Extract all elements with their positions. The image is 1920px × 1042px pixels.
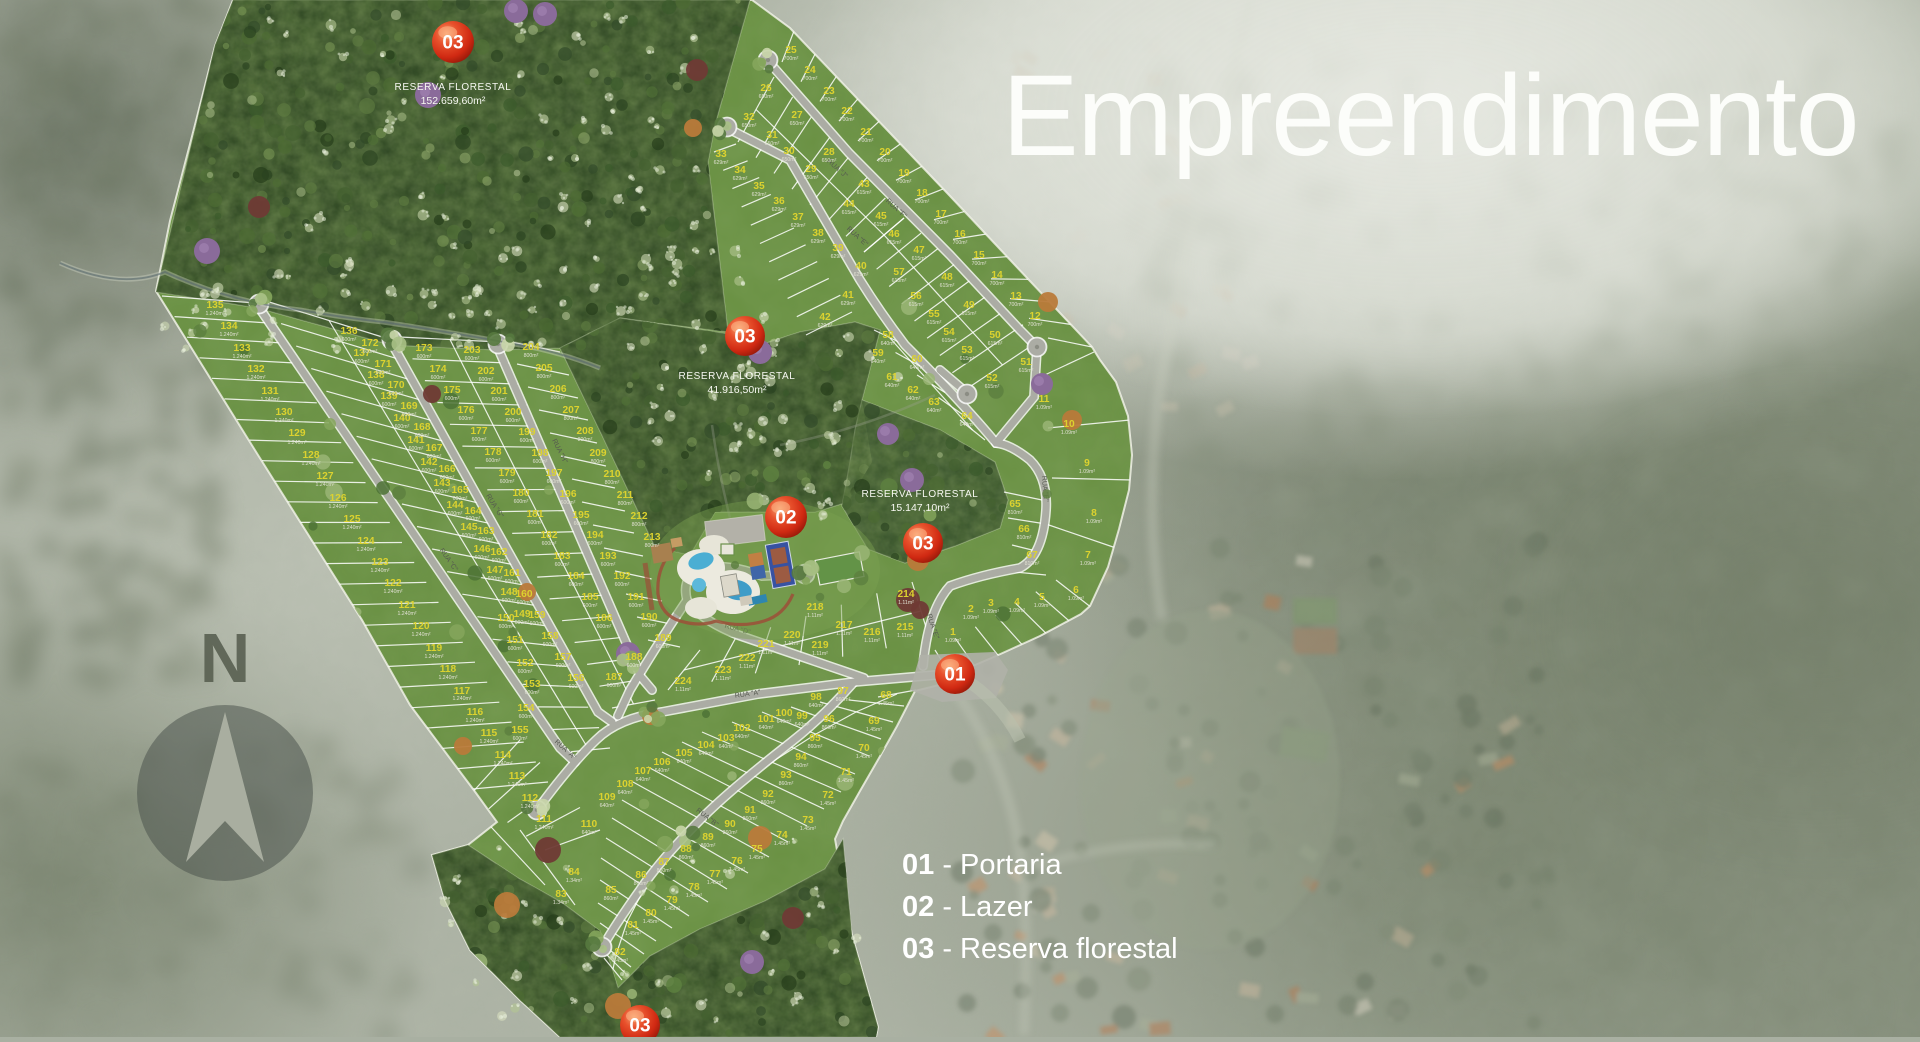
svg-text:600m²: 600m² xyxy=(369,381,384,387)
svg-text:1.240m²: 1.240m² xyxy=(493,761,512,767)
svg-text:600m²: 600m² xyxy=(417,354,432,360)
svg-text:615m²: 615m² xyxy=(887,240,902,246)
svg-text:1.45m²: 1.45m² xyxy=(664,906,680,912)
svg-text:167: 167 xyxy=(426,443,443,454)
svg-text:5: 5 xyxy=(1039,592,1045,603)
svg-text:177: 177 xyxy=(471,426,488,437)
svg-text:201: 201 xyxy=(491,386,508,397)
svg-text:41.916,50m²: 41.916,50m² xyxy=(708,384,767,396)
svg-text:6: 6 xyxy=(1073,585,1079,596)
svg-text:188: 188 xyxy=(626,652,643,663)
svg-text:860m²: 860m² xyxy=(779,781,794,787)
svg-text:700m²: 700m² xyxy=(784,56,799,62)
svg-text:640m²: 640m² xyxy=(735,734,750,740)
svg-text:89: 89 xyxy=(702,832,714,843)
svg-text:600m²: 600m² xyxy=(453,496,468,502)
svg-text:90: 90 xyxy=(724,819,736,830)
svg-text:800m²: 800m² xyxy=(605,480,620,486)
svg-text:214: 214 xyxy=(898,589,915,600)
svg-text:1.240m²: 1.240m² xyxy=(260,397,279,403)
svg-text:178: 178 xyxy=(485,447,502,458)
svg-text:1.240m²: 1.240m² xyxy=(383,589,402,595)
svg-text:28: 28 xyxy=(823,147,835,158)
svg-text:600m²: 600m² xyxy=(519,714,534,720)
svg-text:615m²: 615m² xyxy=(927,320,942,326)
svg-text:1.45m²: 1.45m² xyxy=(643,919,659,925)
svg-text:600m²: 600m² xyxy=(514,499,529,505)
svg-text:1.09m²: 1.09m² xyxy=(1036,405,1052,411)
svg-text:195: 195 xyxy=(573,510,590,521)
svg-text:650m²: 650m² xyxy=(790,121,805,127)
svg-text:860m²: 860m² xyxy=(761,800,776,806)
svg-text:163: 163 xyxy=(478,526,495,537)
svg-text:600m²: 600m² xyxy=(515,620,530,626)
svg-text:114: 114 xyxy=(495,750,512,761)
svg-text:58: 58 xyxy=(882,330,894,341)
svg-text:02 - Lazer: 02 - Lazer xyxy=(902,891,1033,923)
svg-text:84: 84 xyxy=(568,867,580,878)
svg-text:1.09m²: 1.09m² xyxy=(1079,469,1095,475)
svg-text:1.240m²: 1.240m² xyxy=(356,547,375,553)
svg-text:600m²: 600m² xyxy=(462,533,477,539)
svg-text:640m²: 640m² xyxy=(910,365,925,371)
svg-text:650m²: 650m² xyxy=(804,175,819,181)
svg-text:15: 15 xyxy=(973,250,985,261)
svg-text:640m²: 640m² xyxy=(871,359,886,365)
svg-text:169: 169 xyxy=(401,401,418,412)
svg-text:640m²: 640m² xyxy=(927,408,942,414)
svg-text:629m²: 629m² xyxy=(841,301,856,307)
svg-text:41: 41 xyxy=(842,290,854,301)
svg-text:640m²: 640m² xyxy=(885,383,900,389)
svg-text:600m²: 600m² xyxy=(363,349,378,355)
svg-text:59: 59 xyxy=(872,348,884,359)
svg-text:202: 202 xyxy=(478,366,495,377)
svg-text:166: 166 xyxy=(439,464,456,475)
svg-text:219: 219 xyxy=(812,640,829,651)
svg-text:700m²: 700m² xyxy=(859,138,874,144)
svg-text:44: 44 xyxy=(843,199,855,210)
svg-text:132: 132 xyxy=(248,364,265,375)
svg-text:94: 94 xyxy=(795,752,807,763)
svg-text:600m²: 600m² xyxy=(465,356,480,362)
svg-text:60: 60 xyxy=(911,354,923,365)
svg-text:640m²: 640m² xyxy=(759,725,774,731)
svg-text:168: 168 xyxy=(414,422,431,433)
svg-text:78: 78 xyxy=(688,882,700,893)
svg-text:600m²: 600m² xyxy=(502,598,517,604)
svg-text:800m²: 800m² xyxy=(564,416,579,422)
svg-text:152: 152 xyxy=(517,658,534,669)
svg-text:Empreendimento: Empreendimento xyxy=(1002,52,1858,180)
svg-text:32: 32 xyxy=(743,112,755,123)
svg-text:600m²: 600m² xyxy=(508,646,523,652)
svg-text:1.240m²: 1.240m² xyxy=(479,739,498,745)
svg-text:213: 213 xyxy=(644,532,661,543)
svg-text:49: 49 xyxy=(963,300,975,311)
svg-text:17: 17 xyxy=(935,209,947,220)
svg-text:640m²: 640m² xyxy=(677,759,692,765)
svg-text:131: 131 xyxy=(262,386,279,397)
svg-text:600m²: 600m² xyxy=(492,397,507,403)
svg-text:64: 64 xyxy=(961,411,973,422)
svg-text:185: 185 xyxy=(582,592,599,603)
svg-text:629m²: 629m² xyxy=(818,323,833,329)
svg-text:120: 120 xyxy=(413,621,430,632)
svg-text:24: 24 xyxy=(804,65,816,76)
svg-text:220: 220 xyxy=(784,630,801,641)
svg-text:860m²: 860m² xyxy=(808,744,823,750)
svg-text:600m²: 600m² xyxy=(597,624,612,630)
svg-text:93: 93 xyxy=(780,770,792,781)
svg-text:34: 34 xyxy=(734,165,746,176)
svg-text:600m²: 600m² xyxy=(533,459,548,465)
svg-text:101: 101 xyxy=(758,714,775,725)
svg-text:1.45m²: 1.45m² xyxy=(707,880,723,886)
svg-text:1.09m²: 1.09m² xyxy=(945,638,961,644)
svg-text:192: 192 xyxy=(614,571,631,582)
svg-text:151: 151 xyxy=(507,635,524,646)
svg-text:860m²: 860m² xyxy=(836,697,851,703)
svg-text:191: 191 xyxy=(628,592,645,603)
svg-text:110: 110 xyxy=(581,819,598,830)
svg-text:1.240m²: 1.240m² xyxy=(465,718,484,724)
svg-text:42: 42 xyxy=(819,312,831,323)
svg-text:73: 73 xyxy=(802,815,814,826)
svg-text:RESERVA FLORESTAL: RESERVA FLORESTAL xyxy=(862,489,979,500)
svg-text:175: 175 xyxy=(444,385,461,396)
svg-text:800m²: 800m² xyxy=(591,459,606,465)
svg-text:629m²: 629m² xyxy=(791,223,806,229)
svg-text:193: 193 xyxy=(600,551,617,562)
svg-text:1.45m²: 1.45m² xyxy=(612,958,628,964)
svg-text:65: 65 xyxy=(1009,499,1021,510)
svg-text:1.11m²: 1.11m² xyxy=(739,664,755,670)
svg-text:85: 85 xyxy=(605,885,617,896)
svg-text:1.240m²: 1.240m² xyxy=(301,461,320,467)
svg-text:12: 12 xyxy=(1029,311,1041,322)
svg-text:600m²: 600m² xyxy=(574,521,589,527)
svg-text:RESERVA FLORESTAL: RESERVA FLORESTAL xyxy=(395,82,512,93)
svg-text:600m²: 600m² xyxy=(422,468,437,474)
svg-text:209: 209 xyxy=(590,448,607,459)
svg-text:615m²: 615m² xyxy=(940,283,955,289)
svg-text:615m²: 615m² xyxy=(892,278,907,284)
svg-text:186: 186 xyxy=(596,613,613,624)
svg-text:187: 187 xyxy=(606,672,623,683)
svg-text:135: 135 xyxy=(207,300,224,311)
svg-text:1.240m²: 1.240m² xyxy=(452,696,471,702)
svg-text:179: 179 xyxy=(499,468,516,479)
svg-text:106: 106 xyxy=(654,757,671,768)
svg-text:700m²: 700m² xyxy=(1009,302,1024,308)
svg-text:600m²: 600m² xyxy=(656,644,671,650)
svg-text:650m²: 650m² xyxy=(765,141,780,147)
svg-text:1.11m²: 1.11m² xyxy=(864,638,880,644)
svg-text:127: 127 xyxy=(317,471,334,482)
svg-text:52: 52 xyxy=(986,373,998,384)
svg-text:03: 03 xyxy=(912,534,933,555)
svg-text:3: 3 xyxy=(988,598,994,609)
svg-text:92: 92 xyxy=(762,789,774,800)
svg-text:152.659,60m²: 152.659,60m² xyxy=(421,95,486,107)
svg-text:600m²: 600m² xyxy=(440,475,455,481)
svg-text:11: 11 xyxy=(1039,394,1050,405)
svg-text:615m²: 615m² xyxy=(1019,368,1034,374)
svg-text:615m²: 615m² xyxy=(942,338,957,344)
svg-text:68: 68 xyxy=(880,690,892,701)
svg-text:210: 210 xyxy=(604,469,621,480)
svg-text:600m²: 600m² xyxy=(395,424,410,430)
svg-text:194: 194 xyxy=(587,530,604,541)
svg-text:19: 19 xyxy=(898,168,910,179)
svg-text:1: 1 xyxy=(950,627,956,638)
svg-text:1.11m²: 1.11m² xyxy=(675,687,691,693)
svg-text:600m²: 600m² xyxy=(479,537,494,543)
svg-text:860m²: 860m² xyxy=(822,725,837,731)
svg-text:615m²: 615m² xyxy=(874,222,889,228)
svg-text:39: 39 xyxy=(832,243,844,254)
svg-text:1.240m²: 1.240m² xyxy=(397,611,416,617)
svg-text:2: 2 xyxy=(968,604,974,615)
svg-text:66: 66 xyxy=(1018,524,1030,535)
svg-text:157: 157 xyxy=(555,652,572,663)
svg-text:600m²: 600m² xyxy=(588,541,603,547)
svg-text:121: 121 xyxy=(399,600,416,611)
svg-text:700m²: 700m² xyxy=(972,261,987,267)
svg-text:700m²: 700m² xyxy=(803,76,818,82)
svg-text:54: 54 xyxy=(943,327,955,338)
svg-text:212: 212 xyxy=(631,511,648,522)
svg-text:116: 116 xyxy=(467,707,484,718)
svg-text:600m²: 600m² xyxy=(642,623,657,629)
svg-text:76: 76 xyxy=(731,856,743,867)
svg-text:1.240m²: 1.240m² xyxy=(534,825,553,831)
svg-text:600m²: 600m² xyxy=(556,663,571,669)
svg-text:181: 181 xyxy=(527,509,544,520)
svg-text:87: 87 xyxy=(658,857,670,868)
svg-text:600m²: 600m² xyxy=(479,377,494,383)
svg-text:03: 03 xyxy=(442,33,463,54)
svg-text:600m²: 600m² xyxy=(542,541,557,547)
svg-text:198: 198 xyxy=(532,448,549,459)
svg-text:53: 53 xyxy=(961,345,973,356)
svg-text:600m²: 600m² xyxy=(530,621,545,627)
svg-text:27: 27 xyxy=(791,110,803,121)
svg-text:1.34m²: 1.34m² xyxy=(553,900,569,906)
svg-text:640m²: 640m² xyxy=(881,341,896,347)
svg-text:115: 115 xyxy=(481,728,498,739)
svg-text:56: 56 xyxy=(910,291,922,302)
svg-text:1.240m²: 1.240m² xyxy=(232,354,251,360)
svg-text:600m²: 600m² xyxy=(615,582,630,588)
svg-text:700m²: 700m² xyxy=(934,220,949,226)
svg-text:113: 113 xyxy=(509,771,526,782)
svg-text:615m²: 615m² xyxy=(909,302,924,308)
svg-text:165: 165 xyxy=(452,485,469,496)
svg-text:170: 170 xyxy=(388,380,405,391)
svg-text:03: 03 xyxy=(734,327,755,348)
svg-text:91: 91 xyxy=(744,805,756,816)
svg-text:600m²: 600m² xyxy=(513,736,528,742)
svg-text:51: 51 xyxy=(1020,357,1032,368)
svg-text:600m²: 600m² xyxy=(525,690,540,696)
svg-text:650m²: 650m² xyxy=(782,157,797,163)
svg-text:184: 184 xyxy=(568,571,585,582)
svg-text:640m²: 640m² xyxy=(809,703,824,709)
svg-text:700m²: 700m² xyxy=(990,281,1005,287)
svg-text:1.11m²: 1.11m² xyxy=(784,641,800,647)
svg-text:600m²: 600m² xyxy=(355,359,370,365)
svg-text:600m²: 600m² xyxy=(488,576,503,582)
svg-text:22: 22 xyxy=(841,106,853,117)
svg-text:36: 36 xyxy=(773,196,785,207)
svg-text:215: 215 xyxy=(897,622,914,633)
svg-text:197: 197 xyxy=(546,468,563,479)
svg-text:81: 81 xyxy=(627,920,639,931)
svg-text:107: 107 xyxy=(635,766,652,777)
svg-text:800m²: 800m² xyxy=(578,437,593,443)
svg-text:14: 14 xyxy=(991,270,1003,281)
svg-text:172: 172 xyxy=(362,338,379,349)
svg-text:74: 74 xyxy=(776,830,788,841)
svg-text:102: 102 xyxy=(734,723,751,734)
svg-text:860m²: 860m² xyxy=(657,868,672,874)
svg-text:118: 118 xyxy=(440,664,457,675)
svg-text:55: 55 xyxy=(928,309,940,320)
svg-text:1.240m²: 1.240m² xyxy=(507,782,526,788)
svg-text:62: 62 xyxy=(907,385,919,396)
svg-text:860m²: 860m² xyxy=(679,855,694,861)
svg-text:600m²: 600m² xyxy=(505,579,520,585)
svg-text:196: 196 xyxy=(560,489,577,500)
svg-text:75: 75 xyxy=(751,844,763,855)
svg-text:183: 183 xyxy=(554,551,571,562)
svg-text:99: 99 xyxy=(796,711,808,722)
svg-text:208: 208 xyxy=(577,426,594,437)
svg-text:700m²: 700m² xyxy=(953,240,968,246)
svg-text:189: 189 xyxy=(655,633,672,644)
svg-text:03 - Reserva florestal: 03 - Reserva florestal xyxy=(902,933,1178,965)
svg-text:1.11m²: 1.11m² xyxy=(836,631,852,637)
svg-text:1.09m²: 1.09m² xyxy=(1061,430,1077,436)
svg-text:222: 222 xyxy=(739,653,756,664)
svg-text:600m²: 600m² xyxy=(435,489,450,495)
svg-text:216: 216 xyxy=(864,627,881,638)
svg-text:1.240m²: 1.240m² xyxy=(287,440,306,446)
svg-text:600m²: 600m² xyxy=(528,520,543,526)
svg-text:126: 126 xyxy=(330,493,347,504)
svg-text:96: 96 xyxy=(823,714,835,725)
svg-text:211: 211 xyxy=(617,490,634,501)
svg-text:600m²: 600m² xyxy=(569,582,584,588)
svg-text:146: 146 xyxy=(474,544,491,555)
svg-text:1.11m²: 1.11m² xyxy=(715,676,731,682)
svg-text:86: 86 xyxy=(635,870,647,881)
svg-text:01 - Portaria: 01 - Portaria xyxy=(902,849,1062,881)
svg-text:1.09m²: 1.09m² xyxy=(1034,603,1050,609)
svg-text:860m²: 860m² xyxy=(701,843,716,849)
svg-text:1.240m²: 1.240m² xyxy=(315,482,334,488)
svg-text:67: 67 xyxy=(1026,550,1038,561)
svg-text:4: 4 xyxy=(1014,597,1020,608)
svg-text:1.09m²: 1.09m² xyxy=(1009,608,1025,614)
svg-text:860m²: 860m² xyxy=(794,763,809,769)
svg-text:600m²: 600m² xyxy=(601,562,616,568)
svg-text:629m²: 629m² xyxy=(772,207,787,213)
svg-text:700m²: 700m² xyxy=(878,158,893,164)
svg-text:1.240m²: 1.240m² xyxy=(246,375,265,381)
svg-text:810m²: 810m² xyxy=(1008,510,1023,516)
svg-text:47: 47 xyxy=(913,245,925,256)
svg-text:1.45m²: 1.45m² xyxy=(800,826,816,832)
svg-text:156: 156 xyxy=(568,673,585,684)
svg-text:35: 35 xyxy=(753,181,765,192)
svg-text:207: 207 xyxy=(563,405,580,416)
svg-text:26: 26 xyxy=(760,83,772,94)
svg-text:600m²: 600m² xyxy=(415,433,430,439)
svg-text:600m²: 600m² xyxy=(402,412,417,418)
svg-text:600m²: 600m² xyxy=(486,458,501,464)
svg-text:104: 104 xyxy=(698,740,715,751)
svg-text:02: 02 xyxy=(775,508,796,529)
svg-text:1.11m²: 1.11m² xyxy=(812,651,828,657)
svg-text:600m²: 600m² xyxy=(382,402,397,408)
svg-text:150: 150 xyxy=(498,613,515,624)
svg-text:1.45m²: 1.45m² xyxy=(749,855,765,861)
svg-text:122: 122 xyxy=(385,578,402,589)
svg-text:63: 63 xyxy=(928,397,940,408)
svg-text:123: 123 xyxy=(372,557,389,568)
svg-text:100: 100 xyxy=(776,708,793,719)
svg-text:45: 45 xyxy=(875,211,887,222)
svg-text:800m²: 800m² xyxy=(524,353,539,359)
svg-text:600m²: 600m² xyxy=(555,562,570,568)
svg-text:810m²: 810m² xyxy=(1017,535,1032,541)
svg-text:105: 105 xyxy=(676,748,693,759)
svg-text:72: 72 xyxy=(822,790,834,801)
svg-text:860m²: 860m² xyxy=(723,830,738,836)
svg-text:600m²: 600m² xyxy=(607,683,622,689)
svg-text:600m²: 600m² xyxy=(492,558,507,564)
svg-text:82: 82 xyxy=(614,947,626,958)
svg-text:640m²: 640m² xyxy=(618,790,633,796)
svg-text:03: 03 xyxy=(629,1016,650,1037)
svg-text:629m²: 629m² xyxy=(752,192,767,198)
svg-text:1.45m²: 1.45m² xyxy=(625,931,641,937)
svg-text:600m²: 600m² xyxy=(569,684,584,690)
svg-text:180: 180 xyxy=(513,488,530,499)
svg-text:629m²: 629m² xyxy=(811,239,826,245)
svg-text:147: 147 xyxy=(487,565,504,576)
svg-text:70: 70 xyxy=(858,743,870,754)
svg-text:57: 57 xyxy=(893,267,905,278)
svg-text:182: 182 xyxy=(541,530,558,541)
svg-text:1.11m²: 1.11m² xyxy=(898,600,914,606)
svg-text:130: 130 xyxy=(276,407,293,418)
svg-text:46: 46 xyxy=(888,229,900,240)
svg-text:33: 33 xyxy=(715,149,727,160)
svg-text:600m²: 600m² xyxy=(500,479,515,485)
svg-text:800m²: 800m² xyxy=(537,374,552,380)
svg-text:13: 13 xyxy=(1010,291,1022,302)
svg-text:600m²: 600m² xyxy=(431,375,446,381)
svg-text:700m²: 700m² xyxy=(897,179,912,185)
svg-text:43: 43 xyxy=(858,179,870,190)
svg-text:71: 71 xyxy=(840,767,852,778)
svg-text:223: 223 xyxy=(715,665,732,676)
svg-text:160: 160 xyxy=(516,589,533,600)
